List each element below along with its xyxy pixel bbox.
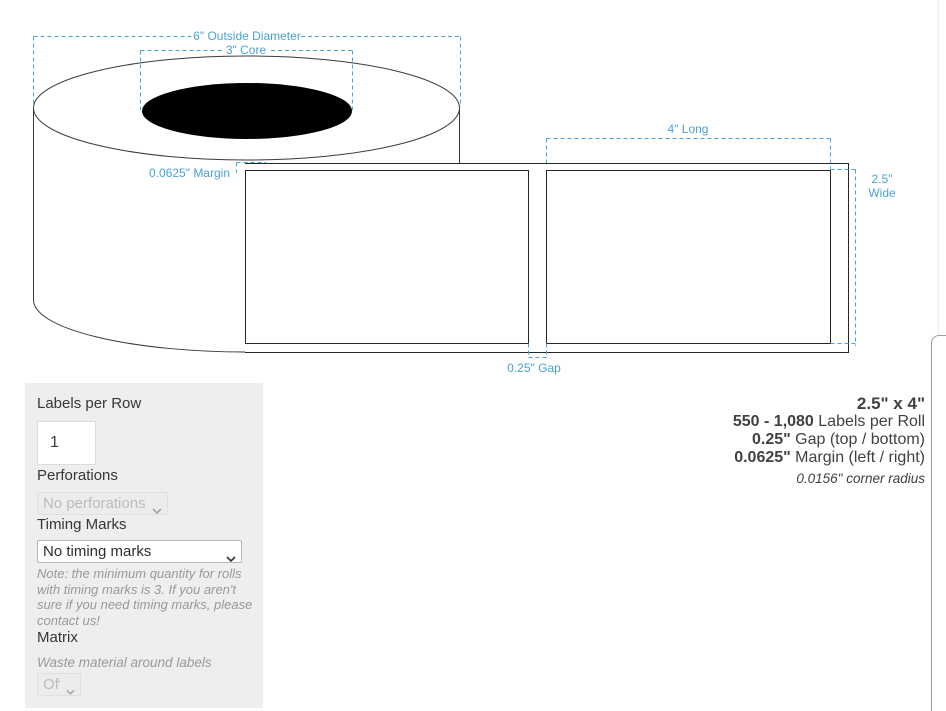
- matrix-label: Matrix: [37, 630, 251, 645]
- core-label: 3" Core: [226, 43, 267, 57]
- spec-margin: 0.0625" Margin (left / right): [733, 449, 925, 467]
- wide-label-value: 2.5": [872, 172, 893, 186]
- spec-margin-label: Margin (left / right): [791, 449, 925, 466]
- margin-label: 0.0625" Margin: [149, 166, 230, 180]
- perforations-select: No perforations: [37, 492, 168, 515]
- timing-marks-note: Note: the minimum quantity for rolls wit…: [37, 566, 255, 628]
- timing-marks-select[interactable]: No timing marks: [37, 540, 242, 563]
- spec-gap-value: 0.25": [752, 431, 791, 448]
- matrix-select: Off: [37, 673, 81, 696]
- adjacent-card-edge: [931, 335, 946, 711]
- label-rect-2: [547, 171, 831, 344]
- timing-marks-select-wrap: No timing marks: [37, 540, 242, 563]
- outside-diameter-label: 6" Outside Diameter: [193, 29, 301, 43]
- perforations-label: Perforations: [37, 468, 251, 483]
- perforations-select-wrap: No perforations: [37, 492, 168, 515]
- spec-labels-per-roll: 550 - 1,080 Labels per Roll: [733, 413, 925, 431]
- long-label: 4" Long: [668, 122, 709, 136]
- spec-labels-per-roll-value: 550 - 1,080: [733, 413, 814, 430]
- matrix-description: Waste material around labels: [37, 655, 251, 670]
- spec-gap-label: Gap (top / bottom): [791, 431, 925, 448]
- page-edge-divider: [938, 0, 939, 335]
- label-roll-diagram: 6" Outside Diameter 3" Core 0.0625" Marg…: [0, 0, 946, 380]
- wide-label-word: Wide: [868, 186, 896, 200]
- spec-corner-radius: 0.0156" corner radius: [733, 470, 925, 488]
- options-panel: Labels per Row Perforations No perforati…: [25, 383, 263, 708]
- timing-marks-label: Timing Marks: [37, 517, 251, 532]
- matrix-select-wrap: Off: [37, 673, 81, 696]
- spec-gap: 0.25" Gap (top / bottom): [733, 431, 925, 449]
- spec-labels-per-roll-label: Labels per Roll: [814, 413, 925, 430]
- labels-per-row-input[interactable]: [37, 421, 96, 465]
- spec-size: 2.5" x 4": [733, 394, 925, 413]
- spec-summary: 2.5" x 4" 550 - 1,080 Labels per Roll 0.…: [733, 394, 925, 488]
- gap-label: 0.25" Gap: [507, 361, 561, 375]
- roll-core: [142, 83, 352, 139]
- label-rect-1: [246, 171, 529, 344]
- labels-per-row-label: Labels per Row: [37, 396, 251, 411]
- spec-margin-value: 0.0625": [734, 449, 791, 466]
